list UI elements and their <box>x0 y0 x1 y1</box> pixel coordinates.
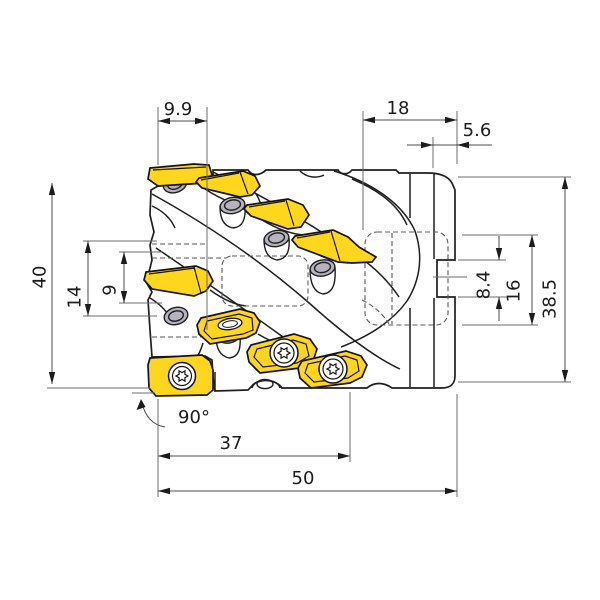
dimension-8-4: 8.4 <box>458 236 506 321</box>
dimension-label: 9.9 <box>164 99 193 120</box>
arrowhead <box>421 142 433 148</box>
dimension-label: 37 <box>220 433 243 454</box>
flute-curve <box>352 179 407 225</box>
dimension-label: 9 <box>99 284 120 295</box>
arrowhead <box>529 235 535 247</box>
inserts <box>144 164 376 396</box>
screw-boss <box>309 258 336 278</box>
dimension-label: 50 <box>292 468 315 489</box>
dimension-label: 8.4 <box>473 271 494 300</box>
technical-drawing-page: 9.9 18 5.6 40 14 9 <box>0 0 600 600</box>
hidden-pocket-outline <box>222 256 308 306</box>
cutter-body <box>144 164 467 396</box>
arrowhead <box>158 453 170 459</box>
torx-screw-icon <box>319 355 347 383</box>
arrowhead <box>445 117 457 123</box>
dimension-40: 40 <box>29 183 150 388</box>
dimension-label: 18 <box>387 98 410 119</box>
arrowhead <box>338 453 350 459</box>
arrowhead <box>85 304 91 316</box>
torx-screw-icon <box>169 363 196 390</box>
arrowhead <box>529 313 535 325</box>
hidden-line <box>362 300 389 324</box>
drawing-canvas: 9.9 18 5.6 40 14 9 <box>0 0 600 600</box>
dimension-5-6: 5.6 <box>407 120 492 168</box>
angle-leader-arc <box>142 403 165 427</box>
insert-3 <box>244 199 309 229</box>
arrowhead <box>363 117 375 123</box>
arrowhead <box>121 252 127 264</box>
arrowhead <box>496 297 502 309</box>
torx-screw-icon <box>270 339 298 367</box>
screw-boss <box>162 305 190 328</box>
arrowhead <box>562 177 568 189</box>
arrowhead <box>49 372 55 384</box>
arrowhead <box>195 118 207 124</box>
arrowhead <box>457 142 469 148</box>
pocket-line <box>152 206 175 228</box>
dimension-label: 40 <box>29 266 50 289</box>
arrowhead <box>445 488 457 494</box>
angle-label: 90° <box>178 407 210 428</box>
arrowhead <box>158 488 170 494</box>
arrowhead <box>85 241 91 253</box>
dimension-label: 14 <box>64 286 85 309</box>
hidden-slot-outline <box>365 232 448 325</box>
arrowhead <box>496 248 502 260</box>
dimension-90-degrees: 90° <box>132 393 210 428</box>
dimension-label: 38.5 <box>539 279 560 319</box>
arrowhead <box>121 291 127 303</box>
dimension-label: 16 <box>503 280 524 303</box>
arrowhead <box>49 183 55 195</box>
flute-curve <box>300 171 324 177</box>
arrowhead <box>137 399 146 410</box>
arrowhead <box>562 370 568 382</box>
dimension-label: 5.6 <box>463 120 492 141</box>
